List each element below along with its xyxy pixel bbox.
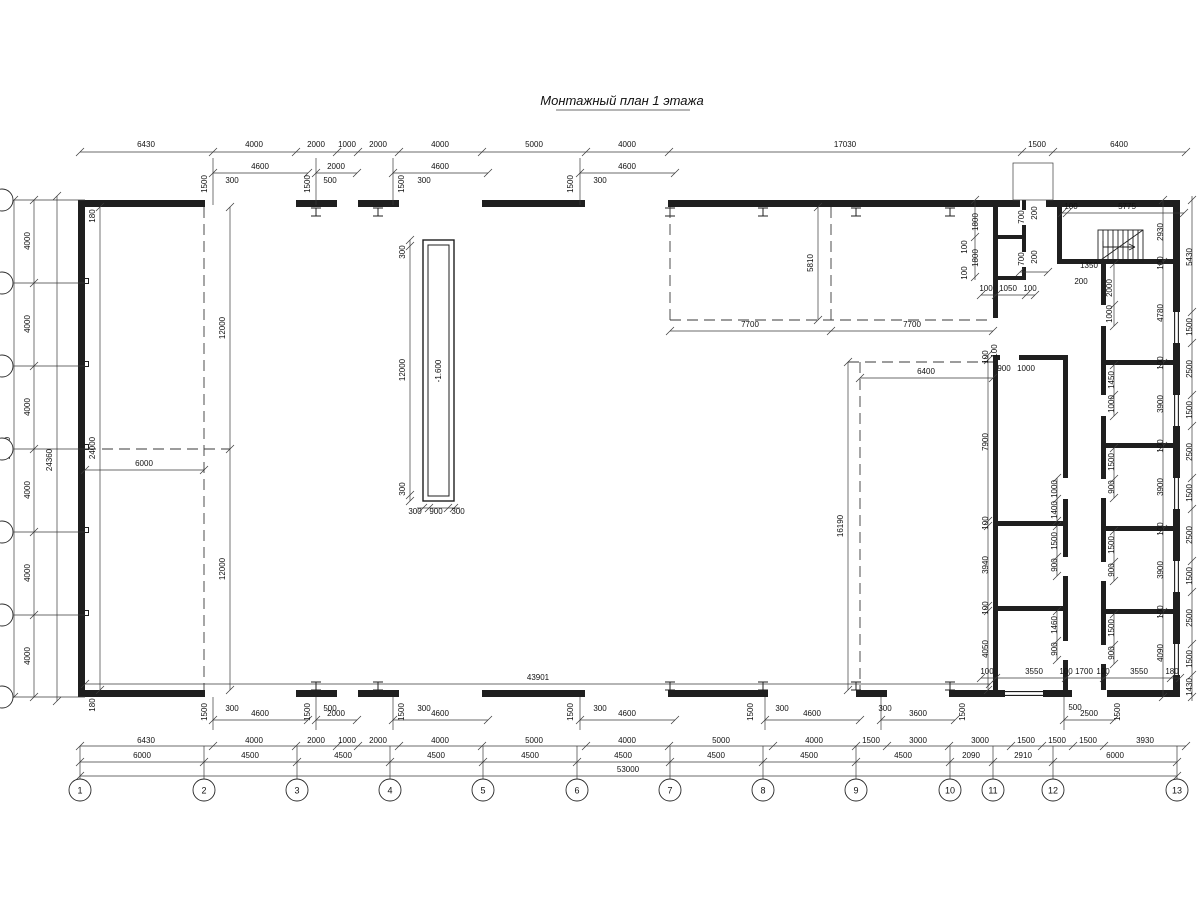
dim-label: 4000 — [245, 736, 263, 745]
axis-bubble — [0, 604, 13, 626]
dim-label: 4000 — [23, 315, 32, 333]
dim-label: 1500 — [958, 703, 967, 721]
dim-label: 900 — [429, 507, 443, 516]
dim-label: 300 — [451, 507, 465, 516]
dim-label: 4000 — [805, 736, 823, 745]
dim-label: 100 — [1156, 605, 1165, 619]
dim-label: 300 — [417, 704, 431, 713]
dim-label: 1350 — [1080, 261, 1098, 270]
dashed-axis-lines — [85, 207, 993, 690]
column-icon — [665, 682, 675, 690]
dim-label: 300 — [417, 176, 431, 185]
axis-number: 3 — [294, 786, 299, 796]
axis-number: 1 — [77, 786, 82, 796]
dim-label: 1500 — [566, 703, 575, 721]
stairs-icon — [1098, 230, 1143, 262]
axis-number: 9 — [853, 786, 858, 796]
dim-label: 100 — [1156, 439, 1165, 453]
dim-label: 2930 — [1156, 223, 1165, 241]
dim-label: 900 — [1050, 558, 1059, 572]
dim-label: 7900 — [981, 433, 990, 451]
dim-label: 100 — [1096, 667, 1110, 676]
dim-label: 1500 — [1079, 736, 1097, 745]
dim-label: 12000 — [218, 557, 227, 580]
dim-label: 2500 — [1185, 443, 1194, 461]
dim-label: 4500 — [707, 751, 725, 760]
dim-label: 1500 — [1185, 650, 1194, 668]
dim-label: 100 — [981, 516, 990, 530]
dim-label: 6430 — [137, 140, 155, 149]
dim-label: 3900 — [1156, 478, 1165, 496]
dim-label: 4600 — [251, 162, 269, 171]
column-icon — [851, 682, 861, 690]
dim-label: 1500 — [1048, 736, 1066, 745]
dim-label: 4000 — [23, 481, 32, 499]
dim-label: 4500 — [334, 751, 352, 760]
dim-label: 300 — [398, 482, 407, 496]
column-icon — [373, 208, 383, 216]
dim-label: 500 — [1068, 703, 1082, 712]
dim-label: 6000 — [135, 459, 153, 468]
dim-label: 5810 — [806, 254, 815, 272]
dim-label: 5430 — [1185, 248, 1194, 266]
dim-label: 100 — [1156, 522, 1165, 536]
dim-label: 100 — [990, 344, 999, 358]
drawing-title: Монтажный план 1 этажа — [540, 93, 703, 110]
dim-label: 200 — [1030, 250, 1039, 264]
dim-label: 700 — [1017, 252, 1026, 266]
axis-bubble — [0, 189, 13, 211]
dim-label: 1500 — [1028, 140, 1046, 149]
dim-label: 5775 — [1118, 202, 1136, 211]
axis-number: 8 — [760, 786, 765, 796]
axis-bubble — [0, 272, 13, 294]
dim-label: 100 — [960, 266, 969, 280]
dim-label: 4500 — [521, 751, 539, 760]
axis-number: 11 — [988, 786, 997, 796]
dim-label: 1800 — [971, 249, 980, 267]
dim-label: 1500 — [746, 703, 755, 721]
column-icon — [851, 208, 861, 216]
dim-label: 4500 — [241, 751, 259, 760]
dim-label: 12000 — [398, 358, 407, 381]
dim-label: 1500 — [200, 703, 209, 721]
column-icon — [373, 682, 383, 690]
dim-label: 4600 — [618, 709, 636, 718]
dim-label: 3930 — [1136, 736, 1154, 745]
dim-label: 1430 — [1185, 678, 1194, 696]
dim-label: 4500 — [614, 751, 632, 760]
dim-label: 4000 — [618, 140, 636, 149]
dim-label: 1500 — [1107, 536, 1116, 554]
dim-label: 5000 — [712, 736, 730, 745]
dim-label: 1500 — [397, 175, 406, 193]
dim-label: 7700 — [741, 320, 759, 329]
dim-label: 1400 — [1050, 501, 1059, 519]
dim-label: 2500 — [1185, 360, 1194, 378]
dim-label: 7700 — [903, 320, 921, 329]
column-icon — [758, 682, 768, 690]
dim-label: 100 — [1059, 667, 1073, 676]
dim-label: 6400 — [1110, 140, 1128, 149]
dim-label: 2090 — [962, 751, 980, 760]
dim-label: 1800 — [971, 213, 980, 231]
dim-label: 4000 — [23, 647, 32, 665]
column-icon — [945, 208, 955, 216]
dim-label: 300 — [593, 176, 607, 185]
dim-label: 2500 — [1080, 709, 1098, 718]
dim-label: 100 — [981, 601, 990, 615]
axis-number: 10 — [945, 786, 955, 796]
axis-bubble — [0, 521, 13, 543]
dim-label: 2000 — [1105, 279, 1114, 297]
dim-label: 1450 — [1107, 371, 1116, 389]
dim-label: 3000 — [971, 736, 989, 745]
dim-label: 4600 — [431, 162, 449, 171]
dim-label: 6000 — [1106, 751, 1124, 760]
axis-number: 13 — [1172, 786, 1182, 796]
dim-label: 100 — [980, 667, 994, 676]
dim-label: 17030 — [834, 140, 857, 149]
dim-label: 3550 — [1130, 667, 1148, 676]
dimension-lines — [10, 148, 1196, 780]
column-icon — [758, 208, 768, 216]
dim-label: 1000 — [1017, 364, 1035, 373]
dim-label: 100 — [960, 240, 969, 254]
dim-label: 1500 — [303, 175, 312, 193]
dim-label: 100 — [981, 350, 990, 364]
dim-label: 1500 — [1113, 703, 1122, 721]
dim-label: 4600 — [251, 709, 269, 718]
dim-label: 300 — [398, 245, 407, 259]
dim-label: 100 — [979, 284, 993, 293]
column-icon — [311, 682, 321, 690]
dim-label: 4090 — [1156, 644, 1165, 662]
dim-label: 24360 — [45, 448, 54, 471]
dim-label: 2000 — [369, 140, 387, 149]
dim-label: 16190 — [836, 514, 845, 537]
dim-label: 6400 — [917, 367, 935, 376]
dim-label: 200 — [1074, 277, 1088, 286]
dim-label: 2000 — [307, 736, 325, 745]
dim-label: 180 — [88, 209, 97, 223]
dim-label: 3000 — [909, 736, 927, 745]
dim-label: 1050 — [999, 284, 1017, 293]
axis-number: 7 — [667, 786, 672, 796]
dim-label: 300 — [225, 176, 239, 185]
dim-label: 1500 — [303, 703, 312, 721]
dim-label: 300 — [775, 704, 789, 713]
dim-label: 300 — [878, 704, 892, 713]
dim-label: 1500 — [862, 736, 880, 745]
axis-number: 6 — [574, 786, 579, 796]
dim-label: 1500 — [1185, 567, 1194, 585]
axis-number: 12 — [1048, 786, 1058, 796]
dim-label: 1000 — [338, 140, 356, 149]
dim-label: 3900 — [1156, 561, 1165, 579]
dim-label: 2500 — [1185, 526, 1194, 544]
dim-label: 4600 — [803, 709, 821, 718]
dim-label: -1.600 — [434, 359, 443, 382]
dim-label: 1500 — [1185, 401, 1194, 419]
dim-label: 180 — [88, 698, 97, 712]
axis-bubble — [0, 355, 13, 377]
dim-label: 1500 — [397, 703, 406, 721]
dim-label: 1700 — [1075, 667, 1093, 676]
dim-label: 5000 — [525, 140, 543, 149]
dim-label: 24000 — [88, 436, 97, 459]
dim-label: 100 — [1064, 202, 1078, 211]
dim-label: 1000 — [1107, 395, 1116, 413]
walls — [78, 200, 1180, 697]
dim-label: 4000 — [23, 398, 32, 416]
dim-label: 500 — [323, 704, 337, 713]
dim-label: 2000 — [327, 162, 345, 171]
dim-label: 200 — [1030, 206, 1039, 220]
dim-label: 3550 — [1025, 667, 1043, 676]
dim-label: 4050 — [981, 640, 990, 658]
floor-plan-canvas: Монтажный план 1 этажа — [0, 0, 1200, 900]
dim-label: 1460 — [1050, 616, 1059, 634]
dim-label: 900 — [1107, 646, 1116, 660]
dim-label: 100 — [1156, 256, 1165, 270]
dim-label: 4500 — [894, 751, 912, 760]
dim-label: 3900 — [1156, 395, 1165, 413]
dim-label: 1500 — [1185, 318, 1194, 336]
dim-label: 900 — [1107, 480, 1116, 494]
column-icon — [945, 682, 955, 690]
dim-label: 1500 — [1050, 532, 1059, 550]
dim-label: 4780 — [1156, 304, 1165, 322]
dim-label: 1500 — [1107, 453, 1116, 471]
dim-label: 2000 — [307, 140, 325, 149]
dim-label: 4000 — [23, 232, 32, 250]
dim-label: 6000 — [133, 751, 151, 760]
column-icon — [311, 208, 321, 216]
dim-label: 1500 — [1017, 736, 1035, 745]
dim-label: 4500 — [800, 751, 818, 760]
dim-label: 4000 — [618, 736, 636, 745]
dim-label: 12000 — [218, 316, 227, 339]
dim-label: 1000 — [1050, 480, 1059, 498]
dim-label: 4000 — [431, 736, 449, 745]
dim-label: 100 — [1023, 284, 1037, 293]
dim-label: 1500 — [566, 175, 575, 193]
dim-label: 2500 — [1185, 609, 1194, 627]
axis-number: 4 — [387, 786, 392, 796]
dim-label: 700 — [1017, 210, 1026, 224]
page-title: Монтажный план 1 этажа — [540, 93, 703, 108]
dim-label: 1500 — [200, 175, 209, 193]
dim-label: 500 — [323, 176, 337, 185]
dim-label: 900 — [1107, 563, 1116, 577]
vestibule-outline — [1013, 163, 1053, 200]
floor-plan-page: Монтажный план 1 этажа — [0, 0, 1200, 900]
dim-label: 6430 — [137, 736, 155, 745]
dim-label: 2910 — [1014, 751, 1032, 760]
dim-label: 1000 — [1105, 305, 1114, 323]
dim-label: 1500 — [1107, 619, 1116, 637]
dim-label: 5000 — [525, 736, 543, 745]
axis-bubble — [0, 686, 13, 708]
dim-label: 100 — [1156, 356, 1165, 370]
dim-label: 4600 — [431, 709, 449, 718]
axis-number: 5 — [480, 786, 485, 796]
dim-label: 180 — [1165, 667, 1179, 676]
dim-label: 1000 — [338, 736, 356, 745]
axis-number: 2 — [201, 786, 206, 796]
dim-label: 900 — [1050, 642, 1059, 656]
dim-label: 3940 — [981, 556, 990, 574]
dim-label: 300 — [225, 704, 239, 713]
dim-label: 1500 — [1185, 484, 1194, 502]
dim-label: 2000 — [369, 736, 387, 745]
dim-label: 4000 — [431, 140, 449, 149]
dim-label: 4000 — [23, 564, 32, 582]
dim-label: 4600 — [618, 162, 636, 171]
dim-label: 4000 — [245, 140, 263, 149]
dim-label: 300 — [408, 507, 422, 516]
dim-label: 43901 — [527, 673, 550, 682]
dim-label: 4500 — [427, 751, 445, 760]
dim-label: 53000 — [617, 765, 640, 774]
dim-label: 300 — [593, 704, 607, 713]
dim-label: 3600 — [909, 709, 927, 718]
dim-label: 900 — [997, 364, 1011, 373]
